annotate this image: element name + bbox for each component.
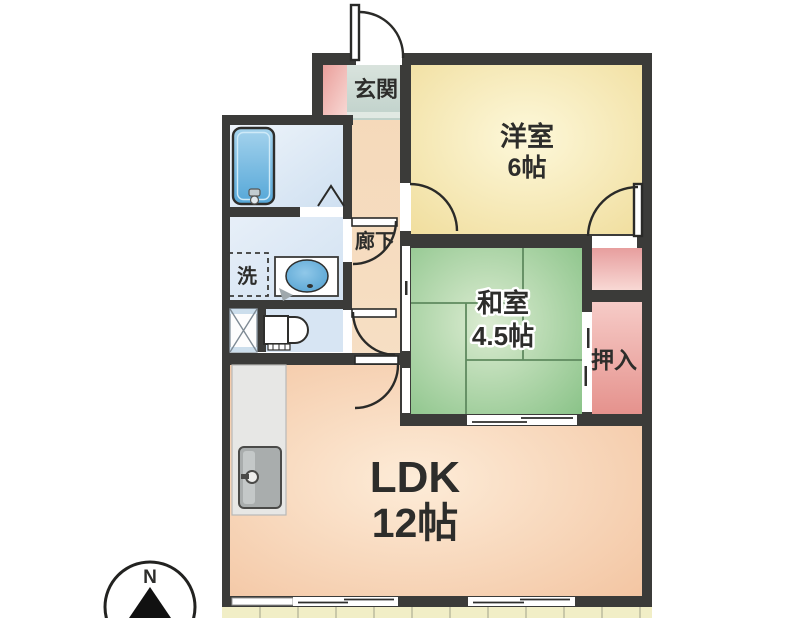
wall-washroom-toilet (222, 300, 343, 309)
ldk-door-leaf (355, 356, 398, 364)
compass: N (105, 562, 195, 618)
toilet-door-opening (343, 310, 352, 353)
ldk-size: 12帖 (372, 500, 459, 546)
western-room-size: 6帖 (508, 154, 547, 182)
ldk-label: LDK (370, 453, 461, 502)
japanese-room-label: 和室 (477, 288, 529, 318)
genkan-label: 玄関 (354, 77, 398, 102)
western-room-door-opening (400, 183, 411, 231)
bathroom-door-opening (300, 207, 343, 217)
washroom-door-leaf (352, 218, 397, 226)
japanese-room-south-sliding-door (467, 415, 577, 425)
western-room-label: 洋室 (500, 121, 554, 152)
bathroom-fixtures (233, 128, 274, 204)
fusuma-tick (585, 366, 588, 386)
entrance-porch (323, 65, 347, 115)
kitchen-fixtures (232, 365, 286, 515)
entrance-step (347, 112, 402, 118)
japanese-room-west-fusuma-lower (402, 368, 410, 413)
japanese-room-west-fusuma (402, 246, 410, 351)
wall-right (642, 53, 652, 607)
wall-porch-left (312, 53, 323, 115)
kitchen-window (232, 598, 293, 605)
toilet-tank-icon (264, 316, 288, 344)
hallway-label: 廊下 (355, 229, 395, 253)
floor-plan-svg: N 玄関 洋室 6帖 和室 4.5帖 押入 廊下 洗 LDK 12帖 (0, 0, 800, 618)
japanese-room-size: 4.5帖 (472, 321, 534, 351)
ldk-window-right (468, 597, 575, 606)
wall-closet-divider (582, 290, 652, 302)
toilet-bowl-icon (288, 317, 308, 343)
oshiire-label: 押入 (591, 347, 637, 373)
washroom-door-opening (343, 219, 352, 262)
wall-bath-top (222, 115, 353, 125)
toilet-door-leaf (352, 309, 396, 317)
balcony (222, 607, 652, 618)
bathtub-drain-icon (251, 196, 259, 204)
ldk-window-left (293, 597, 398, 606)
closet-door-opening (592, 236, 637, 248)
pipe-space-cap-bottom (230, 347, 257, 352)
fusuma-tick (587, 328, 590, 348)
entrance-door-arc (360, 12, 403, 58)
floor-plan-canvas: N 玄関 洋室 6帖 和室 4.5帖 押入 廊下 洗 LDK 12帖 (0, 0, 800, 618)
laundry-label: 洗 (237, 265, 257, 288)
bathtub-faucet-icon (249, 189, 260, 196)
small-closet-floor (592, 248, 642, 290)
entrance-opening (356, 53, 402, 65)
washbasin-icon (286, 260, 328, 292)
closet-door-leaf (634, 184, 642, 236)
entrance-door-leaf (351, 5, 359, 60)
balcony-floor (222, 607, 652, 618)
fusuma-tick (405, 281, 408, 295)
kitchen-faucet-stem (241, 474, 249, 479)
pipe-space-cap-top (230, 309, 257, 314)
compass-north-label: N (143, 567, 157, 588)
washbasin-drain-icon (307, 284, 313, 288)
